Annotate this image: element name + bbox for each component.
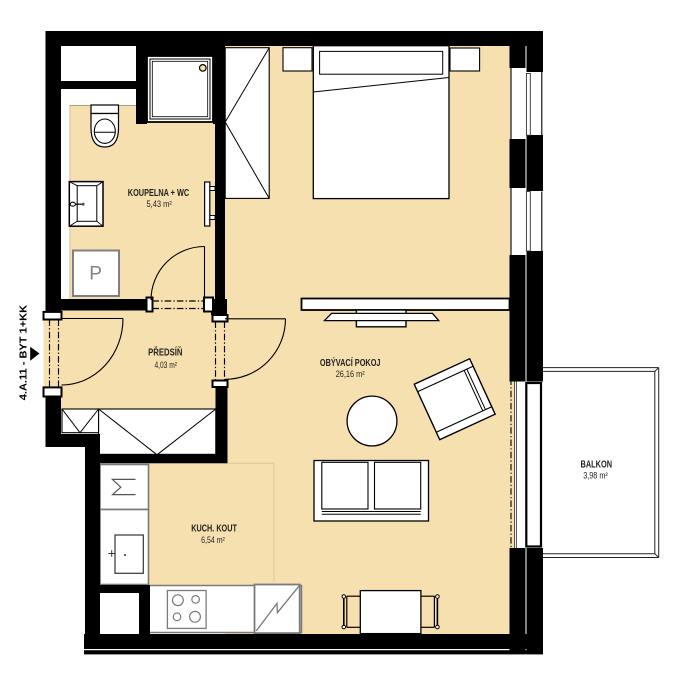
svg-text:BALKON: BALKON <box>581 459 613 470</box>
svg-text:OBÝVACÍ POKOJ: OBÝVACÍ POKOJ <box>320 356 381 369</box>
svg-text:KUCH. KOUT: KUCH. KOUT <box>191 523 237 534</box>
svg-text:26,16 m²: 26,16 m² <box>336 369 365 379</box>
svg-text:4,03 m²: 4,03 m² <box>154 360 177 370</box>
svg-text:4.A.11 - BYT 1+KK: 4.A.11 - BYT 1+KK <box>19 304 30 400</box>
svg-text:KOUPELNA + WC: KOUPELNA + WC <box>128 188 189 199</box>
svg-text:5,43 m²: 5,43 m² <box>147 199 172 209</box>
svg-text:3,98 m²: 3,98 m² <box>583 470 608 480</box>
svg-text:PŘEDSÍŇ: PŘEDSÍŇ <box>148 346 182 359</box>
svg-text:P: P <box>89 263 102 284</box>
svg-text:6,54 m²: 6,54 m² <box>201 535 225 545</box>
